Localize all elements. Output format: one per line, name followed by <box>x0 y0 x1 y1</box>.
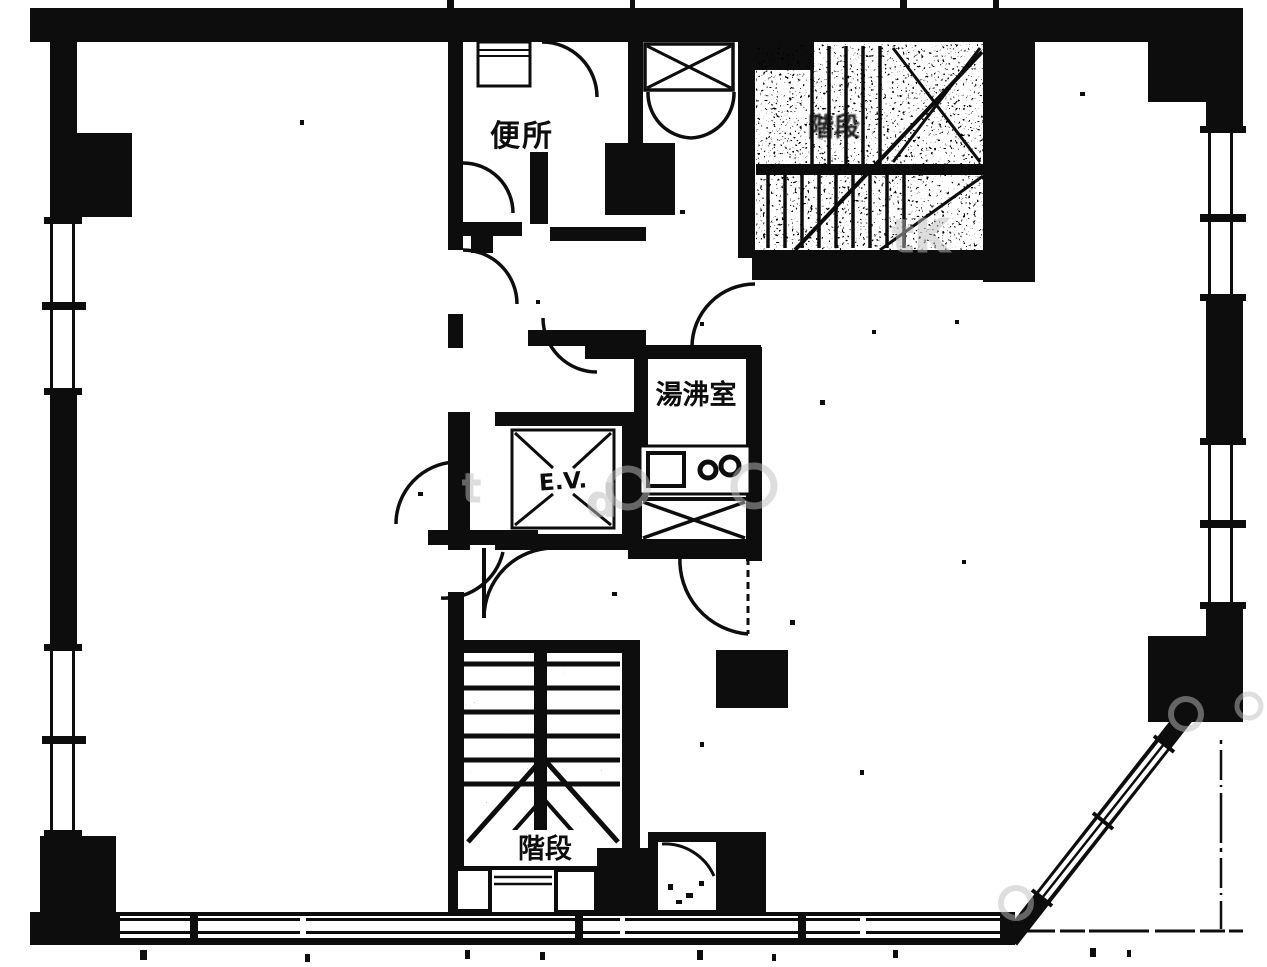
scan-noise <box>0 0 1267 967</box>
floor-plan-drawing: 便所 湯沸室 E.V. <box>0 0 1267 967</box>
floor-plan: 便所 湯沸室 E.V. <box>0 0 1267 967</box>
